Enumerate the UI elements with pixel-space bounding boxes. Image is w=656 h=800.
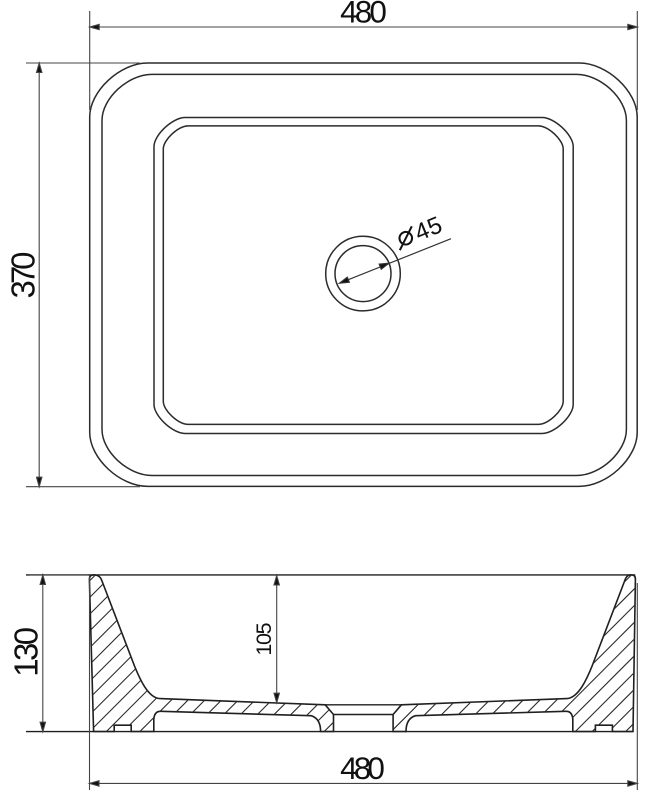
- svg-text:105: 105: [252, 622, 276, 655]
- svg-text:480: 480: [340, 0, 387, 30]
- svg-text:480: 480: [340, 750, 385, 786]
- svg-text:130: 130: [7, 627, 44, 677]
- svg-text:370: 370: [5, 251, 42, 298]
